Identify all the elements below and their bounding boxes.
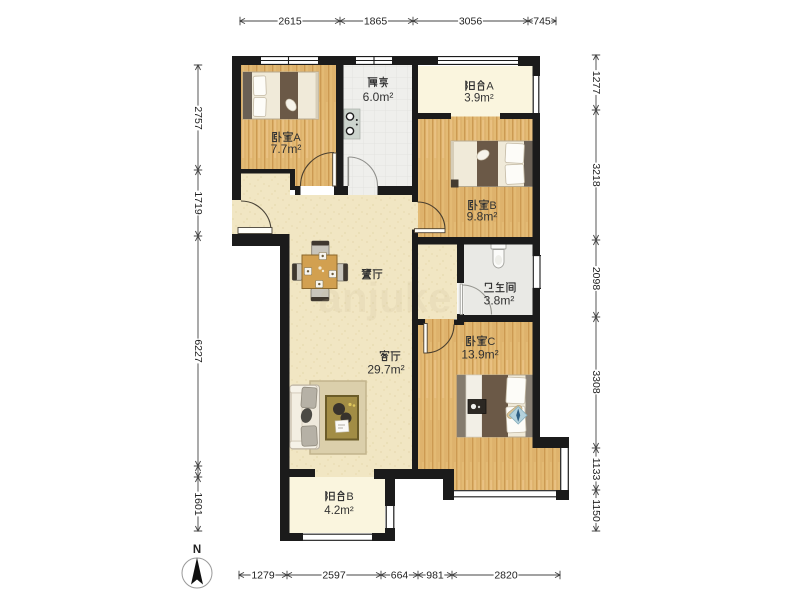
svg-text:1601: 1601 xyxy=(192,492,204,516)
svg-text:4.2m²: 4.2m² xyxy=(324,505,354,517)
svg-text:3308: 3308 xyxy=(590,370,602,394)
svg-text:N: N xyxy=(193,544,201,556)
svg-text:3.8m²: 3.8m² xyxy=(484,293,515,307)
svg-text:A: A xyxy=(486,81,494,93)
svg-text:2615: 2615 xyxy=(278,16,302,28)
svg-text:13.9m²: 13.9m² xyxy=(461,347,498,361)
svg-text:9.8m²: 9.8m² xyxy=(467,209,498,223)
svg-text:2820: 2820 xyxy=(494,570,518,582)
svg-text:2597: 2597 xyxy=(322,570,346,582)
svg-text:1719: 1719 xyxy=(192,191,204,215)
svg-text:anjuke: anjuke xyxy=(318,274,451,321)
svg-text:3.9m²: 3.9m² xyxy=(464,93,494,105)
svg-text:29.7m²: 29.7m² xyxy=(367,362,404,376)
svg-text:B: B xyxy=(346,491,353,503)
svg-text:1133: 1133 xyxy=(590,458,602,481)
svg-text:3056: 3056 xyxy=(459,16,483,28)
svg-text:C: C xyxy=(487,336,495,348)
svg-text:2098: 2098 xyxy=(590,267,602,291)
svg-text:1277: 1277 xyxy=(590,71,602,95)
svg-text:6.0m²: 6.0m² xyxy=(363,90,394,104)
svg-text:981: 981 xyxy=(426,570,444,582)
svg-text:2757: 2757 xyxy=(192,106,204,130)
svg-text:664: 664 xyxy=(391,570,409,582)
svg-text:3218: 3218 xyxy=(590,163,602,187)
svg-text:1865: 1865 xyxy=(364,16,388,28)
svg-text:1279: 1279 xyxy=(251,570,275,582)
svg-text:6227: 6227 xyxy=(192,339,204,363)
svg-text:745: 745 xyxy=(533,16,551,28)
svg-text:7.7m²: 7.7m² xyxy=(271,142,302,156)
svg-text:1150: 1150 xyxy=(590,499,602,522)
